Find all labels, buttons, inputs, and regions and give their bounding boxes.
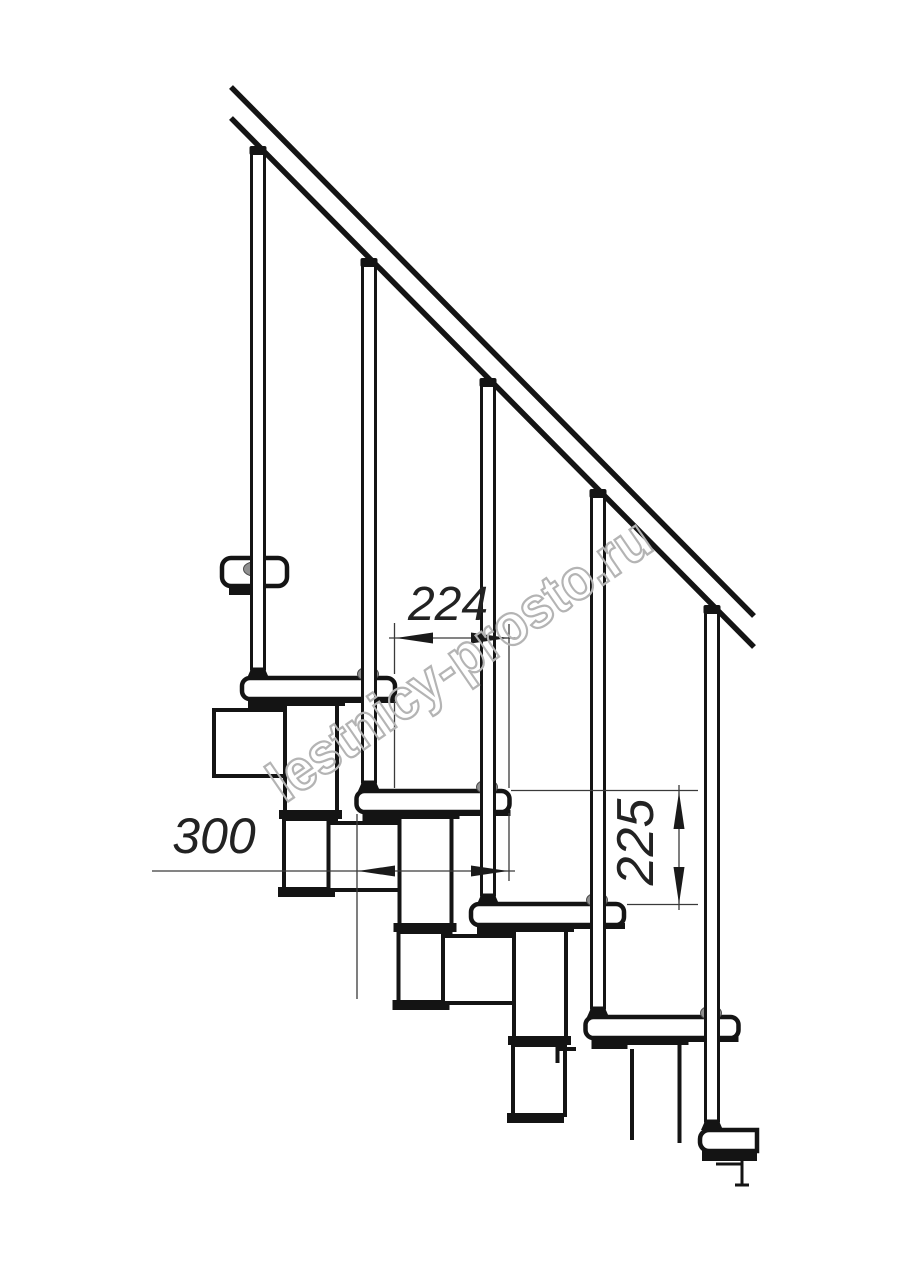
module-box-3 xyxy=(443,936,519,1003)
baluster-5 xyxy=(706,611,719,1121)
baluster-1 xyxy=(252,152,265,669)
staircase-technical-drawing: 224 300 225 lestnicy-prosto.ru xyxy=(0,0,914,1280)
dimension-arrow-up xyxy=(674,792,685,829)
tread-5 xyxy=(700,1130,757,1151)
module-box-2 xyxy=(329,823,405,890)
connector-band xyxy=(393,1000,450,1010)
support-column-2 xyxy=(400,811,452,925)
dimension-depth-label: 300 xyxy=(172,808,256,864)
connector-band xyxy=(278,887,335,897)
drawing-canvas: 224 300 225 lestnicy-prosto.ru xyxy=(0,0,914,1280)
dimension-arrow-down xyxy=(674,867,685,904)
support-column-3 xyxy=(514,924,566,1038)
connector-band xyxy=(507,1113,564,1123)
drawing-edge-lines xyxy=(716,1161,749,1186)
dimension-rise-label: 225 xyxy=(607,798,665,887)
